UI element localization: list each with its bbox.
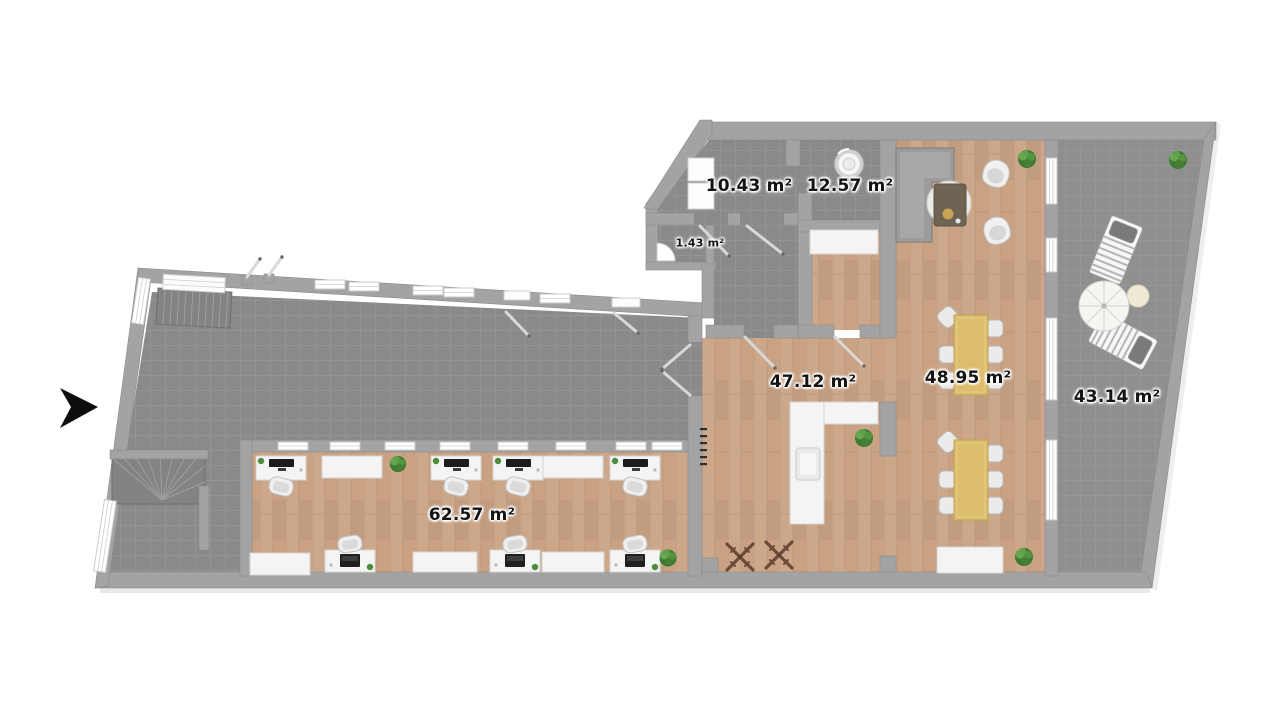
room-label-storage: 10.43 m² (706, 176, 792, 196)
room-label-open-space: 47.12 m² (770, 372, 856, 392)
entrance-arrow (60, 388, 98, 428)
decor (956, 219, 961, 224)
plant (659, 549, 676, 566)
sideboard (937, 547, 1003, 573)
floor-plan: 10.43 m² 12.57 m² 1.43 m² 47.12 m² 48.95… (0, 0, 1280, 715)
window (278, 442, 308, 450)
window (349, 282, 379, 291)
plant (1169, 151, 1187, 169)
window (315, 280, 345, 289)
closet (810, 230, 878, 254)
building-shadow (100, 588, 1150, 593)
parasol (1079, 281, 1129, 331)
door-opening (740, 213, 784, 225)
side-table (1127, 285, 1149, 307)
window (1046, 238, 1057, 272)
sideboard (250, 553, 310, 575)
window (652, 442, 682, 450)
window (440, 442, 470, 450)
double-door-opening (688, 342, 702, 396)
room-label-terrace: 43.14 m² (1074, 387, 1160, 407)
window (556, 442, 586, 450)
sideboard (413, 552, 477, 572)
door-opening (612, 298, 640, 307)
window (540, 294, 570, 303)
window (1046, 158, 1057, 204)
plant (1018, 150, 1036, 168)
window (1046, 318, 1057, 400)
window (444, 288, 474, 297)
window (413, 286, 443, 295)
floorplan-canvas (0, 0, 1280, 715)
window (385, 442, 415, 450)
window (498, 442, 528, 450)
plant (390, 456, 406, 472)
coffee-table (934, 184, 966, 226)
stair-railing (199, 486, 209, 550)
plant (1015, 548, 1033, 566)
room-label-wc: 1.43 m² (676, 237, 725, 250)
sideboard (543, 456, 603, 478)
hallway-floor (714, 225, 798, 338)
door-opening (504, 291, 530, 300)
washing-machine (834, 149, 864, 179)
room-label-dining: 48.95 m² (925, 368, 1011, 388)
window (163, 274, 226, 292)
bowl (943, 209, 954, 220)
stair-railing (110, 450, 208, 459)
room-label-office: 62.57 m² (429, 505, 515, 525)
plant (855, 429, 873, 447)
room-label-utility: 12.57 m² (807, 176, 893, 196)
stairs-upper (156, 288, 232, 328)
door-opening (694, 213, 728, 225)
sink-basin (800, 453, 816, 475)
sideboard (542, 552, 604, 572)
sideboard (322, 456, 382, 478)
stairs-lower (112, 452, 205, 504)
window (1046, 440, 1057, 520)
window (616, 442, 646, 450)
window (330, 442, 360, 450)
